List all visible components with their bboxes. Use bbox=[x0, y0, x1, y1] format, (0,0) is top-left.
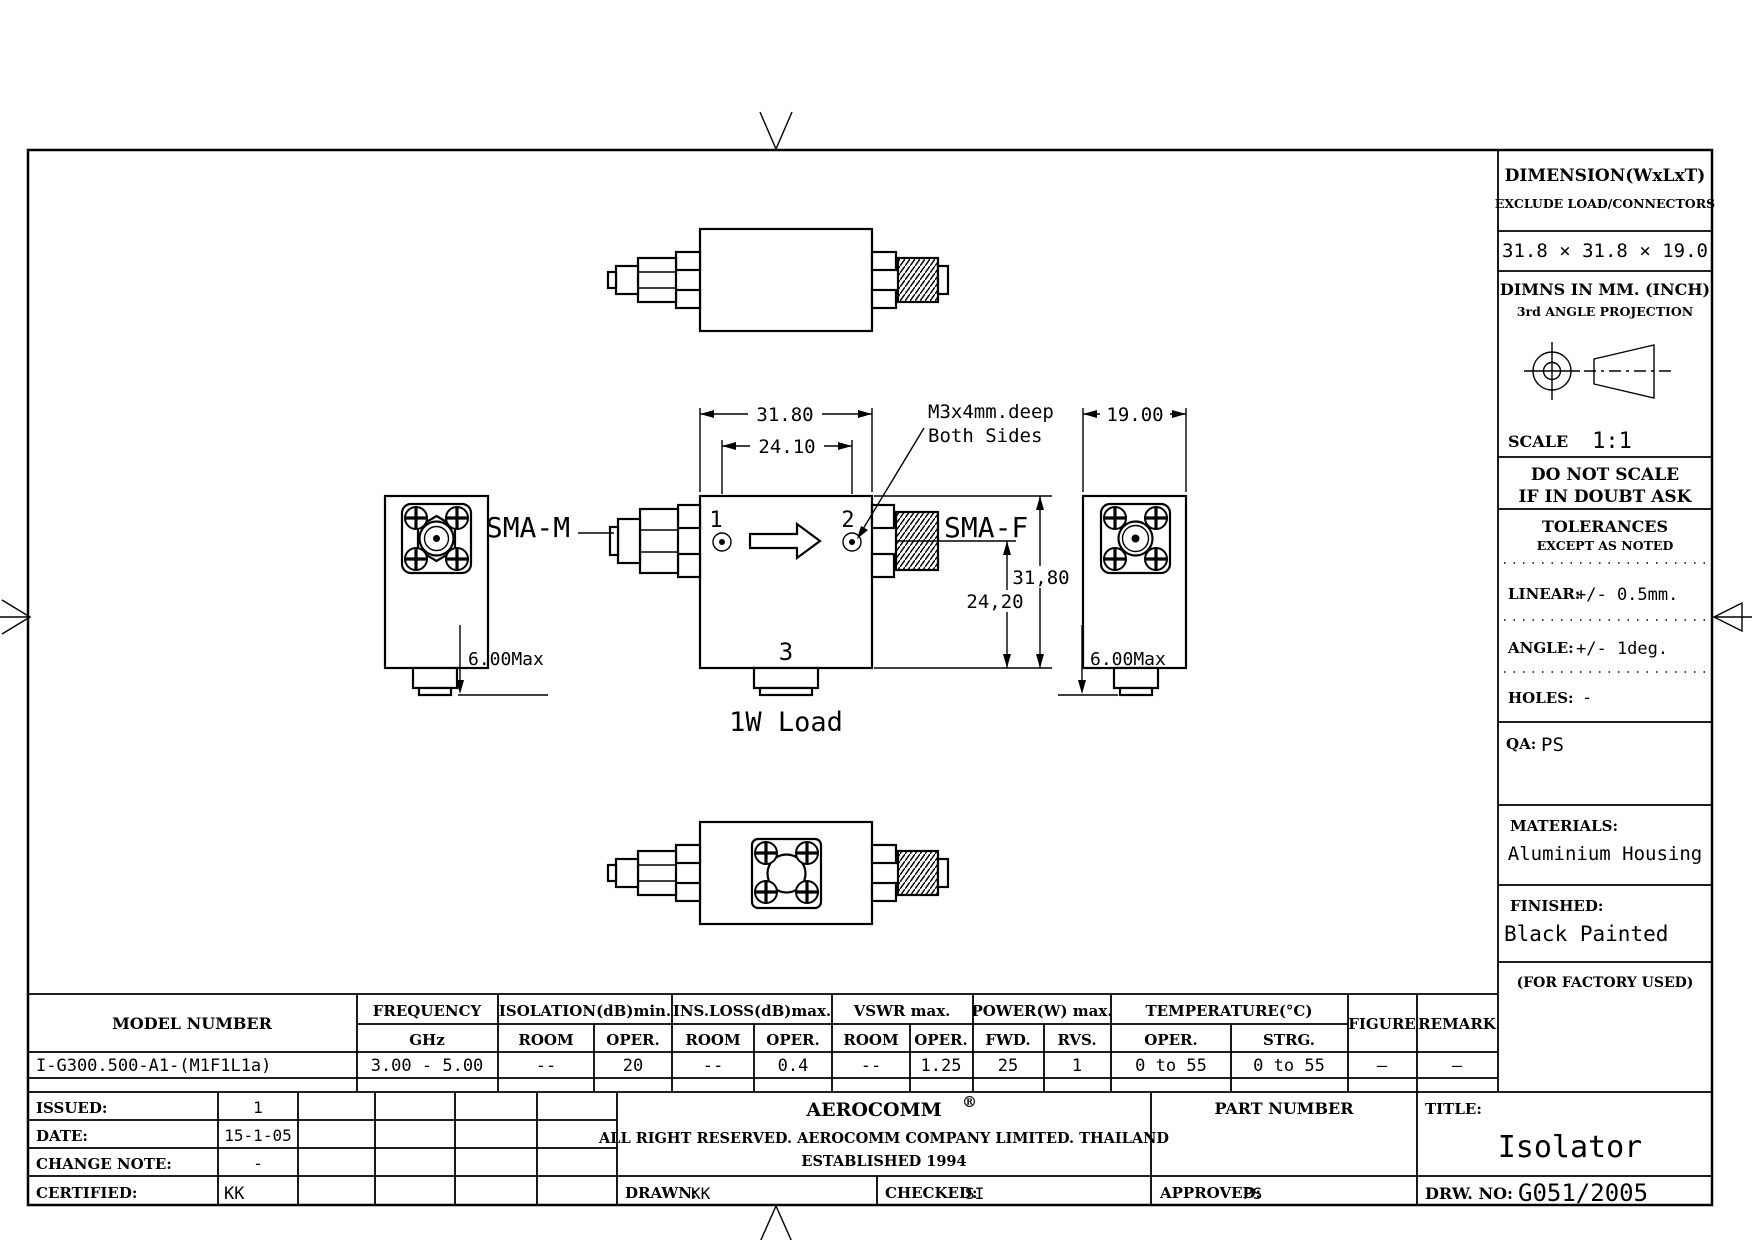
dim-body-width: 31.80 bbox=[756, 404, 813, 426]
linear-label: LINEAR: bbox=[1508, 585, 1580, 603]
certified-label: CERTIFIED: bbox=[36, 1184, 137, 1202]
power-rvs-header: RVS. bbox=[1057, 1031, 1096, 1049]
power-header: POWER(W) max. bbox=[971, 1002, 1112, 1020]
model-number-value: I-G300.500-A1-(M1F1L1a) bbox=[36, 1056, 271, 1076]
scale-label: SCALE bbox=[1508, 432, 1568, 451]
dimension-subtitle: EXCLUDE LOAD/CONNECTORS bbox=[1495, 196, 1715, 211]
bottom-view bbox=[608, 822, 948, 924]
info-panel: DIMENSION(WxLxT) EXCLUDE LOAD/CONNECTORS… bbox=[1495, 150, 1715, 1092]
title-label: TITLE: bbox=[1425, 1100, 1482, 1118]
load-label: 1W Load bbox=[729, 707, 843, 738]
callout-line1: M3x4mm.deep bbox=[928, 401, 1054, 423]
change-note-value: - bbox=[253, 1154, 263, 1173]
qa-label: QA: bbox=[1506, 735, 1536, 753]
established-line: ESTABLISHED 1994 bbox=[801, 1153, 966, 1170]
temperature-oper-header: OPER. bbox=[1144, 1031, 1197, 1049]
insloss-room-header: ROOM bbox=[685, 1031, 740, 1049]
registration-mark-right bbox=[1714, 603, 1752, 631]
date-value: 15-1-05 bbox=[224, 1126, 291, 1145]
insloss-room-value: -- bbox=[703, 1056, 723, 1076]
figure-value: — bbox=[1377, 1056, 1388, 1076]
remark-value: — bbox=[1452, 1056, 1463, 1076]
linear-value: +/- 0.5mm. bbox=[1576, 585, 1678, 605]
figure-header: FIGURE bbox=[1348, 1015, 1415, 1033]
drawing-title: Isolator bbox=[1498, 1130, 1643, 1165]
temperature-strg-value: 0 to 55 bbox=[1253, 1056, 1325, 1076]
remark-header: REMARK bbox=[1418, 1015, 1497, 1033]
warning-line2: IF IN DOUBT ASK bbox=[1519, 487, 1693, 507]
vswr-oper-header: OPER. bbox=[914, 1031, 967, 1049]
top-view bbox=[608, 229, 948, 331]
dim-tab-right: 6.00Max bbox=[1090, 649, 1166, 670]
callout-line2: Both Sides bbox=[928, 425, 1042, 447]
holes-value: - bbox=[1582, 688, 1592, 708]
frequency-unit-header: GHz bbox=[409, 1031, 445, 1049]
spec-table: MODEL NUMBER FREQUENCY GHz ISOLATION(dB)… bbox=[28, 994, 1498, 1092]
finished-value: Black Painted bbox=[1504, 922, 1668, 946]
registration-mark-bottom bbox=[760, 1206, 792, 1240]
power-rvs-value: 1 bbox=[1072, 1056, 1082, 1076]
spec-table-row: I-G300.500-A1-(M1F1L1a) 3.00 - 5.00 -- 2… bbox=[36, 1056, 1463, 1076]
issued-value: 1 bbox=[253, 1098, 263, 1117]
part-number-label: PART NUMBER bbox=[1214, 1099, 1354, 1118]
warning-line1: DO NOT SCALE bbox=[1531, 465, 1679, 485]
sma-f-label: SMA-F bbox=[944, 511, 1028, 544]
company-name: AEROCOMM bbox=[805, 1099, 941, 1121]
issued-label: ISSUED: bbox=[36, 1099, 107, 1117]
temperature-oper-value: 0 to 55 bbox=[1135, 1056, 1207, 1076]
dim-body-height: 31,80 bbox=[1012, 567, 1069, 589]
drawn-value: KK bbox=[691, 1184, 711, 1203]
insloss-header: INS.LOSS(dB)max. bbox=[673, 1002, 831, 1020]
finished-label: FINISHED: bbox=[1510, 897, 1603, 915]
qa-value: PS bbox=[1541, 734, 1564, 756]
insloss-oper-header: OPER. bbox=[766, 1031, 819, 1049]
isolation-header: ISOLATION(dB)min. bbox=[499, 1002, 671, 1020]
isolation-room-header: ROOM bbox=[518, 1031, 573, 1049]
factory-note: (FOR FACTORY USED) bbox=[1517, 975, 1694, 991]
drawn-label: DRAWN: bbox=[625, 1184, 697, 1202]
registration-mark-left bbox=[0, 600, 30, 634]
isolation-oper-value: 20 bbox=[623, 1056, 643, 1076]
dimension-value: 31.8 × 31.8 × 19.0 bbox=[1502, 240, 1708, 262]
isolation-oper-header: OPER. bbox=[606, 1031, 659, 1049]
holes-label: HOLES: bbox=[1508, 689, 1574, 707]
tolerances-subtitle: EXCEPT AS NOTED bbox=[1537, 538, 1674, 553]
dim-hole-spacing: 24.10 bbox=[758, 436, 815, 458]
port2-label: 2 bbox=[841, 508, 854, 533]
model-number-header: MODEL NUMBER bbox=[112, 1014, 273, 1033]
right-side-view: 19.00 6.00Max bbox=[1058, 402, 1186, 695]
drw-no-label: DRW. NO: bbox=[1425, 1184, 1513, 1203]
date-label: DATE: bbox=[36, 1127, 88, 1145]
title-block: ISSUED: 1 DATE: 15-1-05 CHANGE NOTE: - C… bbox=[28, 1092, 1712, 1207]
port3-label: 3 bbox=[779, 638, 793, 666]
checked-value: SI bbox=[965, 1184, 984, 1203]
frequency-value: 3.00 - 5.00 bbox=[371, 1056, 484, 1076]
materials-label: MATERIALS: bbox=[1510, 817, 1618, 835]
registered-mark: ® bbox=[962, 1093, 977, 1111]
vswr-room-header: ROOM bbox=[843, 1031, 898, 1049]
tolerances-title: TOLERANCES bbox=[1542, 517, 1668, 536]
projection-symbol-icon bbox=[1524, 342, 1672, 400]
power-fwd-header: FWD. bbox=[985, 1031, 1030, 1049]
insloss-oper-value: 0.4 bbox=[778, 1056, 809, 1076]
units-note: DIMNS IN MM. (INCH) bbox=[1500, 280, 1710, 299]
registration-mark-top bbox=[760, 112, 792, 149]
dim-side-width: 19.00 bbox=[1106, 404, 1163, 426]
rights-line: ALL RIGHT RESERVED. AEROCOMM COMPANY LIM… bbox=[598, 1130, 1169, 1147]
drw-no-value: G051/2005 bbox=[1518, 1179, 1648, 1207]
vswr-header: VSWR max. bbox=[853, 1002, 951, 1020]
temperature-header: TEMPERATURE(°C) bbox=[1146, 1002, 1313, 1020]
sma-m-label: SMA-M bbox=[486, 511, 570, 544]
approved-value: PS bbox=[1243, 1184, 1262, 1203]
power-fwd-value: 25 bbox=[998, 1056, 1018, 1076]
angle-value: +/- 1deg. bbox=[1576, 639, 1668, 659]
vswr-room-value: -- bbox=[861, 1056, 881, 1076]
dimension-title: DIMENSION(WxLxT) bbox=[1505, 166, 1706, 186]
dim-tab-left: 6.00Max bbox=[468, 649, 544, 670]
checked-label: CHECKED: bbox=[885, 1184, 978, 1202]
change-note-label: CHANGE NOTE: bbox=[36, 1155, 172, 1173]
projection-note: 3rd ANGLE PROJECTION bbox=[1517, 304, 1693, 319]
dim-port-height: 24,20 bbox=[966, 591, 1023, 613]
temperature-strg-header: STRG. bbox=[1263, 1031, 1315, 1049]
isolation-room-value: -- bbox=[536, 1056, 556, 1076]
materials-value: Aluminium Housing bbox=[1508, 843, 1702, 865]
angle-label: ANGLE: bbox=[1507, 639, 1574, 657]
vswr-oper-value: 1.25 bbox=[921, 1056, 962, 1076]
scale-value: 1:1 bbox=[1592, 429, 1632, 454]
front-view: 1 2 3 bbox=[610, 496, 938, 695]
certified-value: KK bbox=[224, 1184, 245, 1204]
port1-label: 1 bbox=[709, 508, 722, 533]
frequency-header: FREQUENCY bbox=[373, 1002, 482, 1020]
drawing-sheet: DIMENSION(WxLxT) EXCLUDE LOAD/CONNECTORS… bbox=[0, 0, 1754, 1240]
